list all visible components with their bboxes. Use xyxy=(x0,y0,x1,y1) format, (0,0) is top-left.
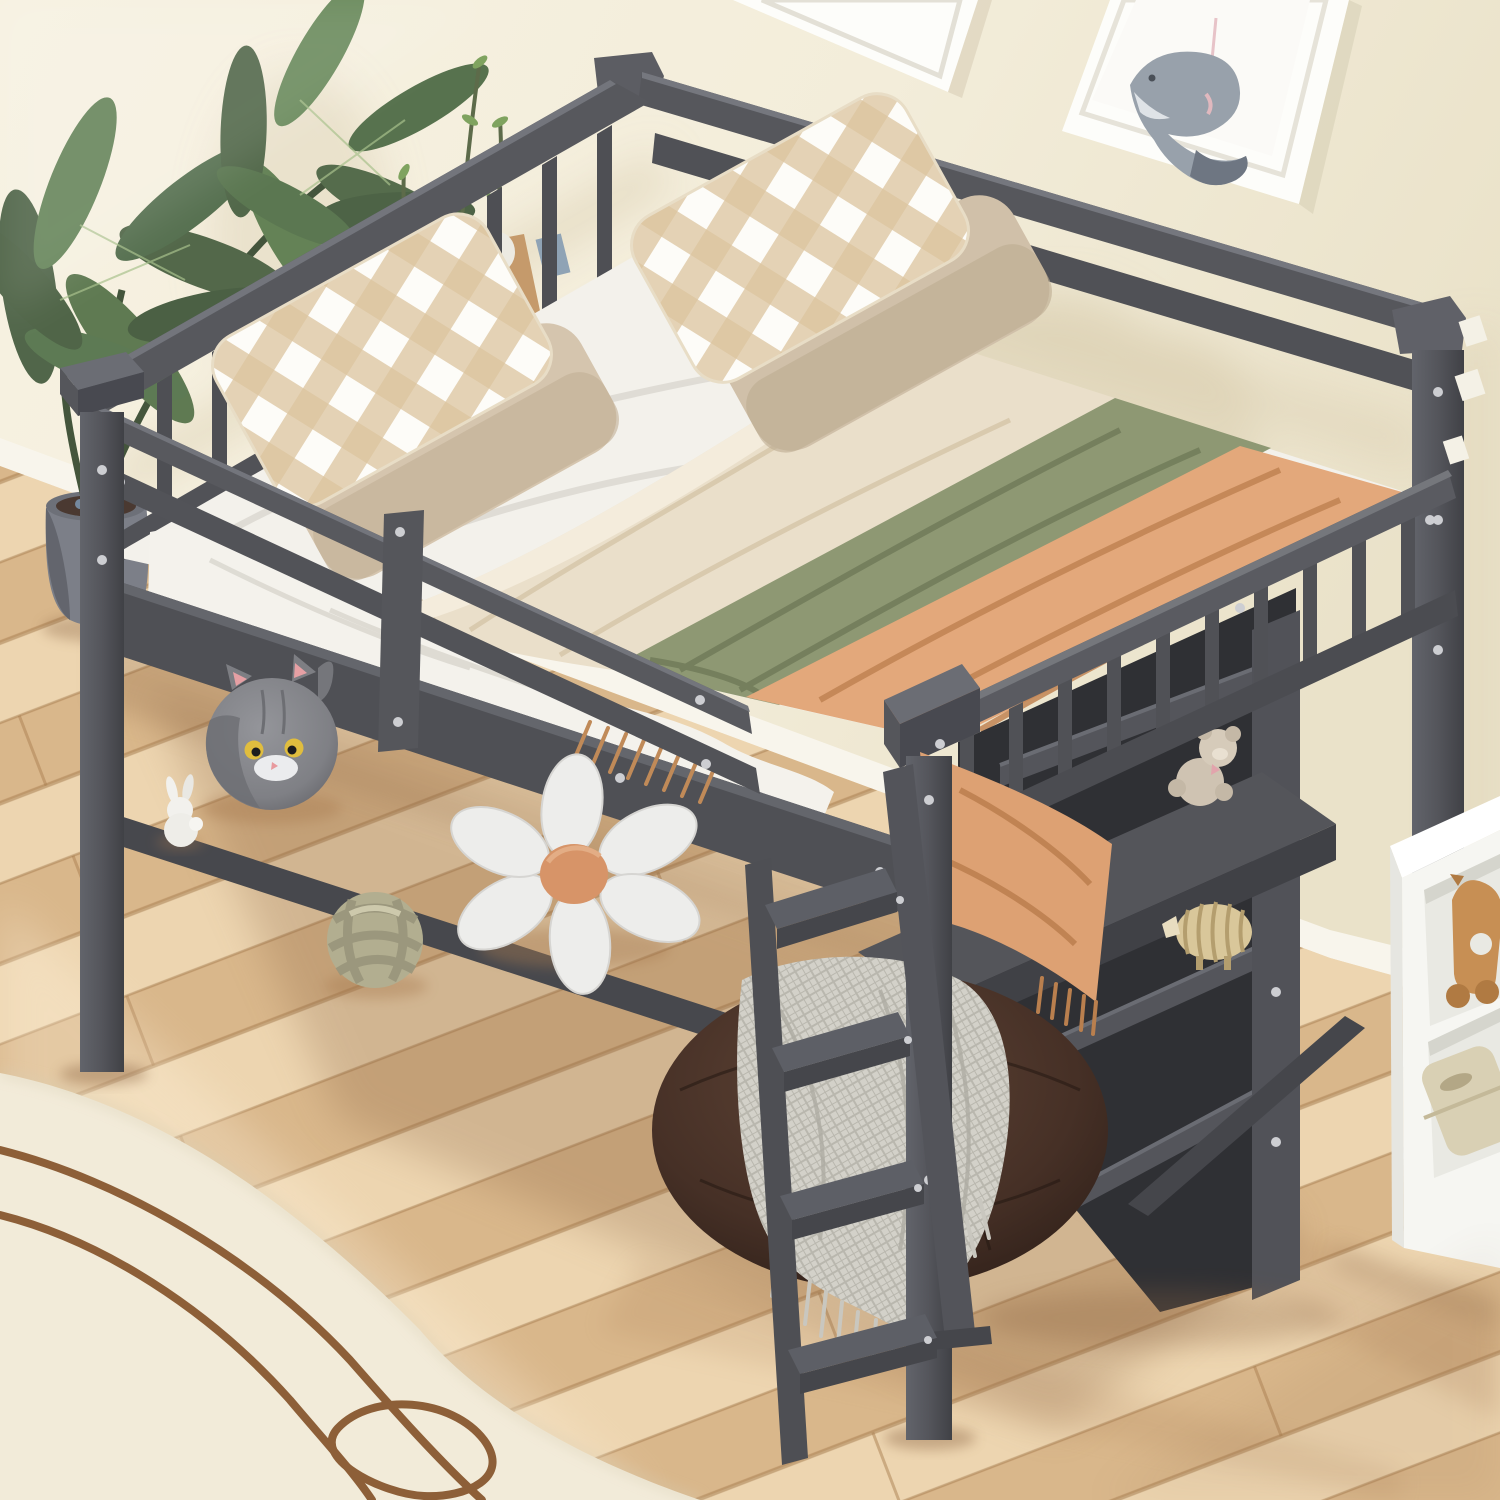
bedroom-photo xyxy=(0,0,1500,1500)
whale-eye xyxy=(1149,75,1156,82)
cat-muzzle xyxy=(254,755,298,781)
post-a xyxy=(80,412,124,1072)
tower-floor-shadow xyxy=(980,1290,1340,1346)
toy-cutout xyxy=(1470,933,1492,955)
cube-shelf-edge xyxy=(1390,846,1404,1248)
guard-divider xyxy=(378,510,424,752)
tower-column xyxy=(1252,610,1300,1300)
scene-canvas xyxy=(0,0,1500,1500)
